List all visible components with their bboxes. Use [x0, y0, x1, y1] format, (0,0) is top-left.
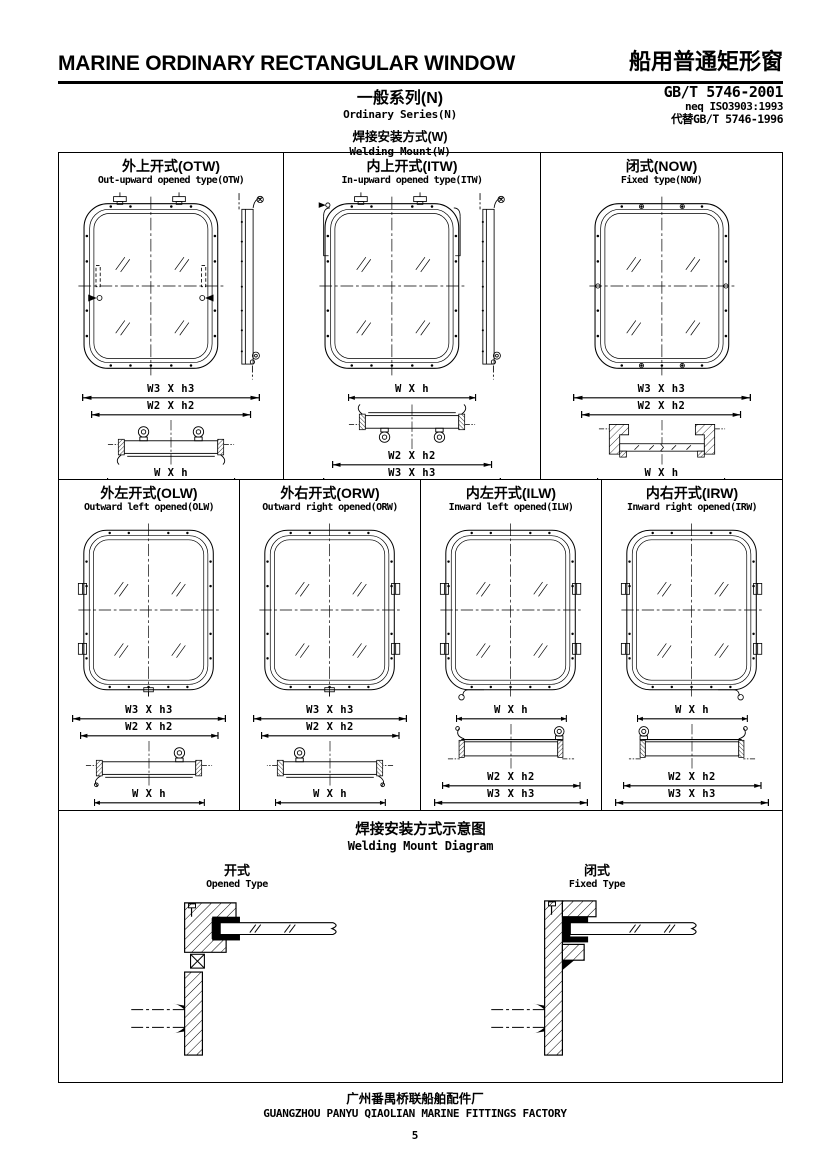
now-title-en: Fixed type(NOW): [621, 175, 702, 187]
itw-views: [318, 191, 505, 381]
welding-title-zh: 焊接安装方式示意图: [59, 818, 782, 839]
dimension-label: W2 X h2: [442, 772, 581, 782]
dimension-arrow: [94, 799, 205, 806]
dimension-label: W3 X h3: [82, 384, 260, 394]
dimension-wh: W X h: [637, 705, 748, 722]
now-dimensions: W3 X h3 W2 X h2 W X h: [573, 384, 751, 479]
dimension-arrow: [456, 715, 567, 722]
olw-views: [77, 518, 220, 702]
dimension-label: W3 X h3: [72, 705, 226, 715]
page-title-en: MARINE ORDINARY RECTANGULAR WINDOW: [58, 52, 515, 76]
irw-views: [620, 518, 763, 702]
dimension-arrow: [434, 799, 588, 806]
dimension-label: W2 X h2: [623, 772, 762, 782]
document-page: MARINE ORDINARY RECTANGULAR WINDOW 船用普通矩…: [0, 0, 830, 1175]
dimension-label: W X h: [348, 384, 476, 394]
welding-fixed-label-en: Fixed Type: [477, 879, 717, 890]
irw-title-zh: 内右开式(IRW): [646, 485, 738, 502]
panel-orw: 外右开式(ORW) Outward right opened(ORW): [240, 480, 421, 810]
itw-title-en: In-upward opened type(ITW): [342, 175, 483, 187]
page-number: 5: [0, 1129, 830, 1142]
panel-ilw: 内左开式(ILW) Inward left opened(ILW): [421, 480, 602, 810]
orw-title-en: Outward right opened(ORW): [262, 502, 398, 514]
factory-name-zh: 广州番禺桥联船舶配件厂: [0, 1088, 830, 1107]
dimension-wh: W X h: [94, 789, 205, 806]
orw-section-drawing: [253, 741, 407, 787]
dimension-w3h3: W3 X h3: [72, 705, 226, 722]
welding-opened-label-en: Opened Type: [117, 879, 357, 890]
welding-opened-group: 开式 Opened Type: [117, 860, 357, 1065]
dimension-w2h2: W2 X h2: [332, 451, 492, 468]
dimension-wh: W X h: [348, 384, 476, 401]
panel-olw: 外左开式(OLW) Outward left opened(OLW) W: [59, 480, 240, 810]
dimension-w2h2: W2 X h2: [91, 401, 251, 418]
dimension-w3h3: W3 X h3: [573, 384, 751, 401]
dimension-label: W2 X h2: [91, 401, 251, 411]
dimension-w3h3: W3 X h3: [253, 705, 407, 722]
now-views: [588, 191, 736, 381]
welding-opened-drawing: [121, 893, 353, 1061]
dimension-wh: W X h: [597, 468, 725, 479]
panel-otw: 外上开式(OTW) Out-upward opened type(OTW): [59, 153, 284, 479]
itw-front-view-drawing: [318, 191, 466, 381]
ilw-section-drawing: [434, 724, 588, 770]
otw-dimensions: W3 X h3 W2 X h2 W X h: [82, 384, 260, 479]
orw-title-zh: 外右开式(ORW): [280, 485, 379, 502]
itw-dimensions: W X h W2 X h2 W3 X h3: [323, 384, 501, 479]
welding-diagram-row: 焊接安装方式示意图 Welding Mount Diagram 开式 Opene…: [59, 818, 782, 1088]
itw-title-zh: 内上开式(ITW): [367, 158, 458, 175]
page-header: MARINE ORDINARY RECTANGULAR WINDOW 船用普通矩…: [58, 44, 783, 84]
dimension-label: W3 X h3: [573, 384, 751, 394]
page-title-zh: 船用普通矩形窗: [629, 44, 783, 76]
irw-front-view-drawing: [620, 518, 763, 702]
dimension-label: W3 X h3: [253, 705, 407, 715]
dimension-label: W2 X h2: [80, 722, 219, 732]
welding-title-en: Welding Mount Diagram: [59, 839, 782, 853]
itw-section-drawing: [323, 403, 501, 449]
panel-itw: 内上开式(ITW) In-upward opened type(ITW): [284, 153, 541, 479]
dimension-label: W X h: [597, 468, 725, 478]
olw-front-view-drawing: [77, 518, 220, 702]
irw-dimensions: W X h W2 X h2 W3 X h3: [615, 705, 769, 806]
irw-title-en: Inward right opened(IRW): [627, 502, 757, 514]
olw-title-en: Outward left opened(OLW): [84, 502, 214, 514]
otw-title-zh: 外上开式(OTW): [122, 158, 220, 175]
otw-side-view-drawing: [232, 191, 264, 381]
drawing-row-1: 外上开式(OTW) Out-upward opened type(OTW): [59, 153, 782, 480]
dimension-arrow: [91, 411, 251, 418]
orw-dimensions: W3 X h3 W2 X h2 W X h: [253, 705, 407, 806]
dimension-arrow: [261, 732, 400, 739]
dimension-arrow: [637, 715, 748, 722]
welding-title: 焊接安装方式示意图 Welding Mount Diagram: [59, 818, 782, 853]
dimension-label: W X h: [637, 705, 748, 715]
dimension-w2h2: W2 X h2: [80, 722, 219, 739]
dimension-w3h3: W3 X h3: [82, 384, 260, 401]
drawing-row-2: 外左开式(OLW) Outward left opened(OLW) W: [59, 480, 782, 811]
dimension-arrow: [275, 799, 386, 806]
dimension-label: W2 X h2: [581, 401, 741, 411]
olw-dimensions: W3 X h3 W2 X h2 W X h: [72, 705, 226, 806]
dimension-label: W2 X h2: [332, 451, 492, 461]
ilw-views: [439, 518, 582, 702]
series-title-zh: 一般系列(N): [0, 84, 800, 108]
otw-front-view-drawing: [77, 191, 225, 381]
ilw-title-en: Inward left opened(ILW): [449, 502, 574, 514]
panel-irw: 内右开式(IRW) Inward right opened(IRW): [602, 480, 782, 810]
page-footer: 广州番禺桥联船舶配件厂 GUANGZHOU PANYU QIAOLIAN MAR…: [0, 1088, 830, 1142]
ilw-dimensions: W X h W2 X h2 W3 X h3: [434, 705, 588, 806]
panel-now: 闭式(NOW) Fixed type(NOW) W3 X h3: [541, 153, 782, 479]
otw-title-en: Out-upward opened type(OTW): [98, 175, 244, 187]
dimension-label: W3 X h3: [323, 468, 501, 478]
series-block: 一般系列(N) Ordinary Series(N) 焊接安装方式(W) Wel…: [0, 84, 800, 158]
dimension-w3h3: W3 X h3: [434, 789, 588, 806]
dimension-w3h3: W3 X h3: [323, 468, 501, 479]
dimension-label: W X h: [275, 789, 386, 799]
dimension-arrow: [615, 799, 769, 806]
orw-views: [258, 518, 401, 702]
dimension-arrow: [80, 732, 219, 739]
dimension-label: W3 X h3: [434, 789, 588, 799]
factory-name-en: GUANGZHOU PANYU QIAOLIAN MARINE FITTINGS…: [0, 1107, 830, 1120]
series-title-en: Ordinary Series(N): [0, 108, 800, 121]
dimension-w2h2: W2 X h2: [581, 401, 741, 418]
dimension-label: W2 X h2: [261, 722, 400, 732]
dimension-w2h2: W2 X h2: [442, 772, 581, 789]
drawing-table: 外上开式(OTW) Out-upward opened type(OTW): [58, 152, 783, 1083]
otw-views: [77, 191, 264, 381]
dimension-wh: W X h: [456, 705, 567, 722]
dimension-w2h2: W2 X h2: [261, 722, 400, 739]
dimension-label: W X h: [107, 468, 235, 478]
welding-fixed-drawing: [481, 893, 713, 1061]
irw-section-drawing: [615, 724, 769, 770]
dimension-arrow: [348, 394, 476, 401]
ilw-title-zh: 内左开式(ILW): [466, 485, 556, 502]
otw-section-drawing: [82, 420, 260, 466]
dimension-arrow: [581, 411, 741, 418]
now-front-view-drawing: [588, 191, 736, 381]
olw-title-zh: 外左开式(OLW): [100, 485, 197, 502]
welding-fixed-label-zh: 闭式: [477, 860, 717, 879]
olw-section-drawing: [72, 741, 226, 787]
dimension-wh: W X h: [275, 789, 386, 806]
dimension-w3h3: W3 X h3: [615, 789, 769, 806]
mount-title-zh: 焊接安装方式(W): [0, 126, 800, 145]
welding-opened-label-zh: 开式: [117, 860, 357, 879]
dimension-w2h2: W2 X h2: [623, 772, 762, 789]
dimension-label: W X h: [94, 789, 205, 799]
welding-fixed-group: 闭式 Fixed Type: [477, 860, 717, 1065]
dimension-label: W X h: [456, 705, 567, 715]
itw-side-view-drawing: [473, 191, 505, 381]
dimension-label: W3 X h3: [615, 789, 769, 799]
ilw-front-view-drawing: [439, 518, 582, 702]
now-title-zh: 闭式(NOW): [626, 158, 698, 175]
now-section-drawing: [573, 420, 751, 466]
orw-front-view-drawing: [258, 518, 401, 702]
dimension-wh: W X h: [107, 468, 235, 479]
